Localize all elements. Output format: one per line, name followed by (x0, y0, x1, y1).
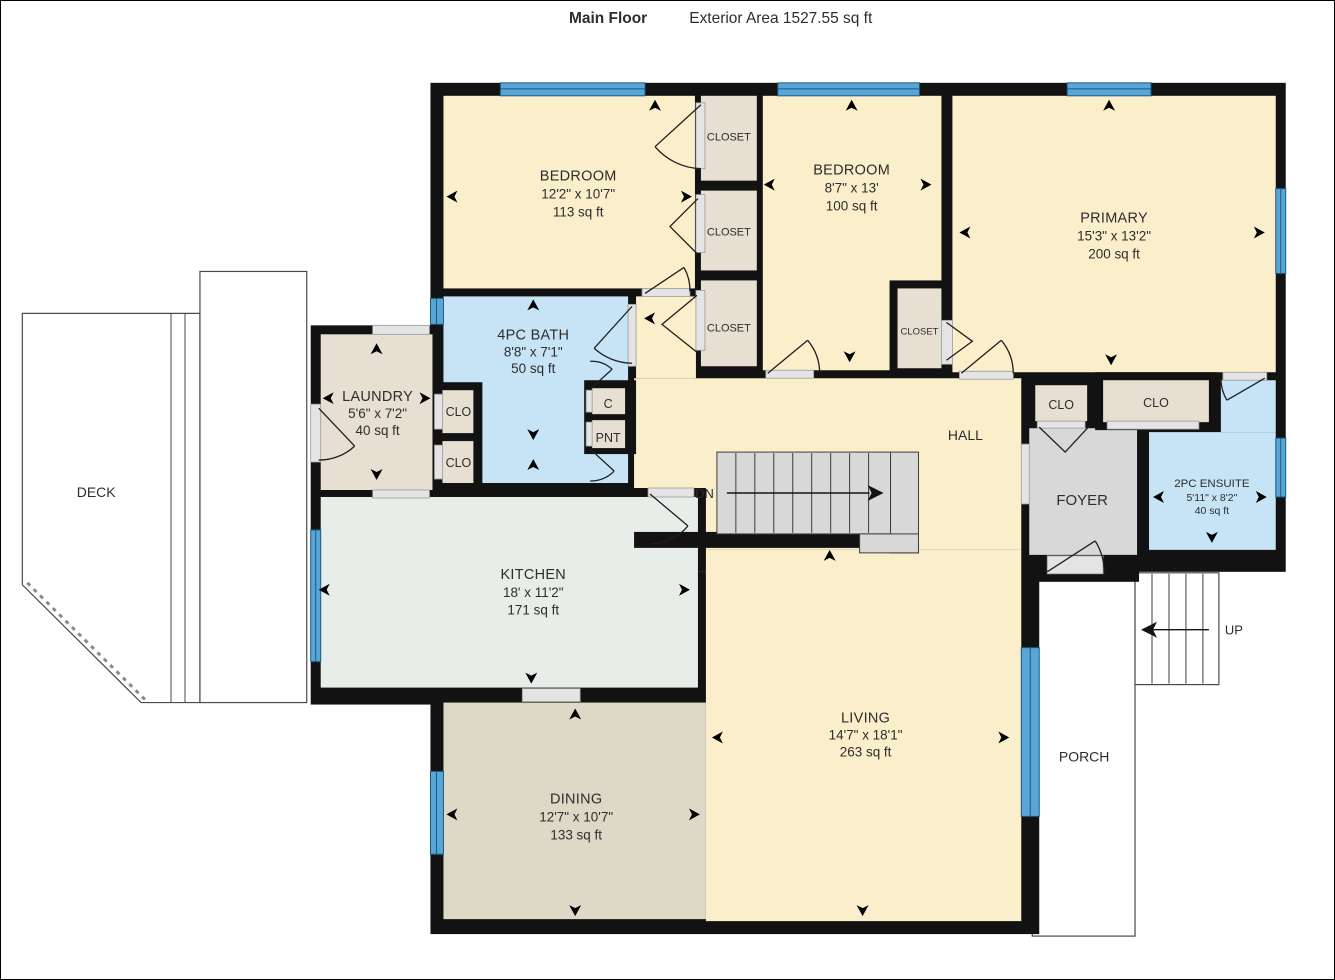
ensuite-dims: 5'11" x 8'2" (1186, 493, 1237, 504)
window-bedroom2 (778, 83, 920, 96)
window-bedroom1 (500, 83, 645, 96)
ensuite-name: 2PC ENSUITE (1174, 478, 1250, 490)
window-dining (430, 771, 443, 854)
deck-outline (22, 271, 306, 702)
primary-dims: 15'3" x 13'2" (1077, 229, 1151, 244)
room-corridor (636, 296, 696, 378)
bedroom2-name: BEDROOM (813, 163, 890, 179)
window-primary-top (1067, 83, 1151, 96)
dining-area: 133 sq ft (550, 827, 602, 842)
deck-label: DECK (77, 484, 116, 500)
porch-label: PORCH (1059, 748, 1109, 764)
pantry-label: PNT (596, 431, 621, 445)
laundry-name: LAUNDRY (342, 389, 413, 405)
foyer-label: FOYER (1056, 492, 1108, 509)
ensuite-area: 40 sq ft (1195, 506, 1229, 517)
primary-closet-label: CLO (1143, 396, 1169, 410)
bedroom2-dims: 8'7" x 13' (825, 181, 879, 196)
primary-area: 200 sq ft (1088, 246, 1140, 261)
bath-area: 50 sq ft (511, 361, 555, 376)
kitchen-dims: 18' x 11'2" (503, 585, 564, 600)
exterior-stairs (1135, 573, 1219, 685)
clo-a-label: CLO (446, 405, 472, 419)
stairs-up-label: UP (1225, 623, 1243, 638)
hall-label: HALL (948, 427, 983, 443)
stairs-down-label: DN (695, 486, 714, 501)
room-ensuite (1149, 432, 1276, 550)
dining-name: DINING (550, 791, 602, 807)
page-subtitle: Exterior Area 1527.55 sq ft (689, 10, 873, 27)
page-title: Main Floor (569, 10, 647, 27)
bath-name: 4PC BATH (497, 327, 569, 343)
bath-dims: 8'8" x 7'1" (504, 344, 563, 359)
window-bath (430, 298, 443, 324)
laundry-area: 40 sq ft (355, 423, 399, 438)
closet-b-label: CLOSET (707, 227, 751, 239)
living-area: 263 sq ft (840, 744, 892, 759)
primary-name: PRIMARY (1080, 211, 1148, 227)
window-primary-right (1276, 189, 1286, 274)
cupboard-label: C (604, 397, 613, 411)
bedroom2-area: 100 sq ft (826, 199, 878, 214)
bedroom1-area: 113 sq ft (553, 205, 604, 220)
bedroom1-dims: 12'2" x 10'7" (541, 187, 615, 202)
living-dims: 14'7" x 18'1" (829, 727, 903, 742)
clo-b-label: CLO (446, 456, 472, 470)
window-ensuite (1276, 438, 1286, 497)
foyer-closet-label: CLO (1048, 398, 1074, 412)
bedroom1-name: BEDROOM (540, 169, 617, 185)
living-name: LIVING (841, 711, 890, 727)
dining-dims: 12'7" x 10'7" (539, 809, 613, 824)
bedroom2-closet-label: CLOSET (901, 326, 939, 337)
floorplan-canvas: Main Floor Exterior Area 1527.55 sq ft (0, 0, 1335, 980)
window-living (1021, 648, 1039, 817)
kitchen-name: KITCHEN (500, 567, 566, 583)
kitchen-area: 171 sq ft (507, 603, 559, 618)
window-kitchen (311, 530, 321, 662)
closet-a-label: CLOSET (707, 132, 751, 144)
closet-c-label: CLOSET (707, 322, 751, 334)
laundry-dims: 5'6" x 7'2" (348, 406, 407, 421)
